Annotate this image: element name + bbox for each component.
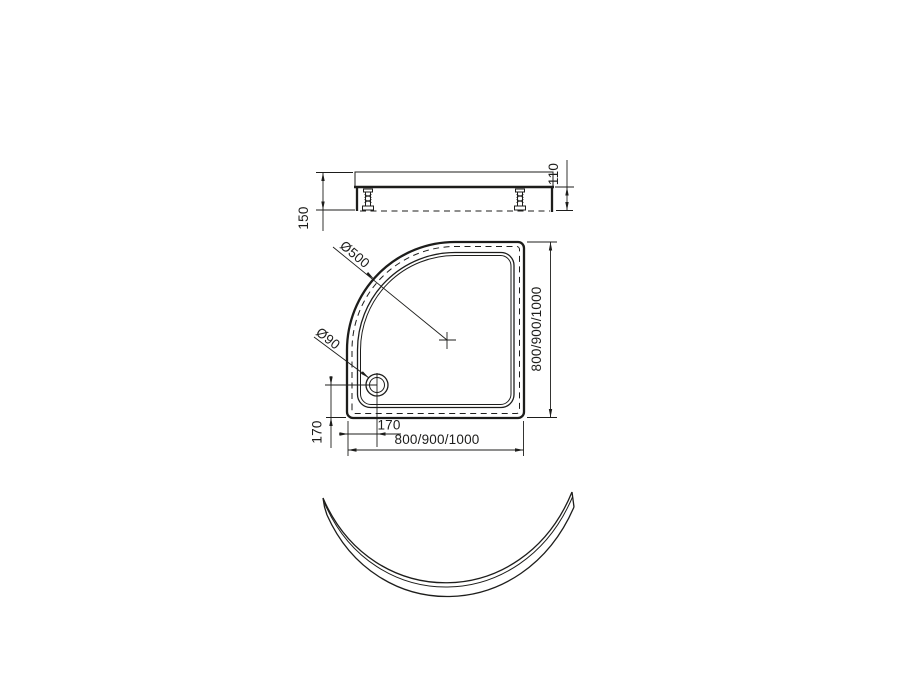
technical-drawing: 150 110 [0, 0, 900, 677]
dim-overall-depth-label: 800/900/1000 [529, 287, 544, 372]
dim-drain-offset-horizontal-label: 170 [377, 418, 400, 433]
dim-drain-diameter-label: Ø90 [313, 325, 343, 353]
adjustable-foot-left [363, 189, 374, 210]
front-panel-view [323, 492, 574, 597]
panel-right-end-cap [572, 492, 574, 507]
dim-110-label: 110 [546, 163, 561, 185]
panel-top-edge [323, 492, 572, 583]
dimension-110: 110 [546, 160, 574, 211]
dim-150-label: 150 [296, 206, 311, 229]
adjustable-foot-right [515, 189, 526, 210]
tray-inner-rim-inner-line [360, 256, 511, 405]
plan-view: Ø500 Ø90 170 170 [310, 238, 558, 456]
dimension-drain-offset-vertical: 170 [310, 376, 333, 448]
side-elevation-view: 150 110 [296, 160, 574, 231]
tray-body-outline [355, 172, 553, 187]
panel-inner-lip [325, 497, 573, 587]
dimension-overall-depth: 800/900/1000 [527, 242, 557, 418]
dimension-overall-width: 800/900/1000 [348, 421, 524, 456]
drawing-canvas: 150 110 [0, 0, 900, 677]
tray-inner-rim-outer-line [358, 253, 515, 408]
center-mark [439, 332, 456, 349]
dim-drain-offset-vertical-label: 170 [310, 420, 325, 443]
dim-overall-width-label: 800/900/1000 [395, 432, 480, 447]
dimension-150: 150 [296, 173, 355, 232]
